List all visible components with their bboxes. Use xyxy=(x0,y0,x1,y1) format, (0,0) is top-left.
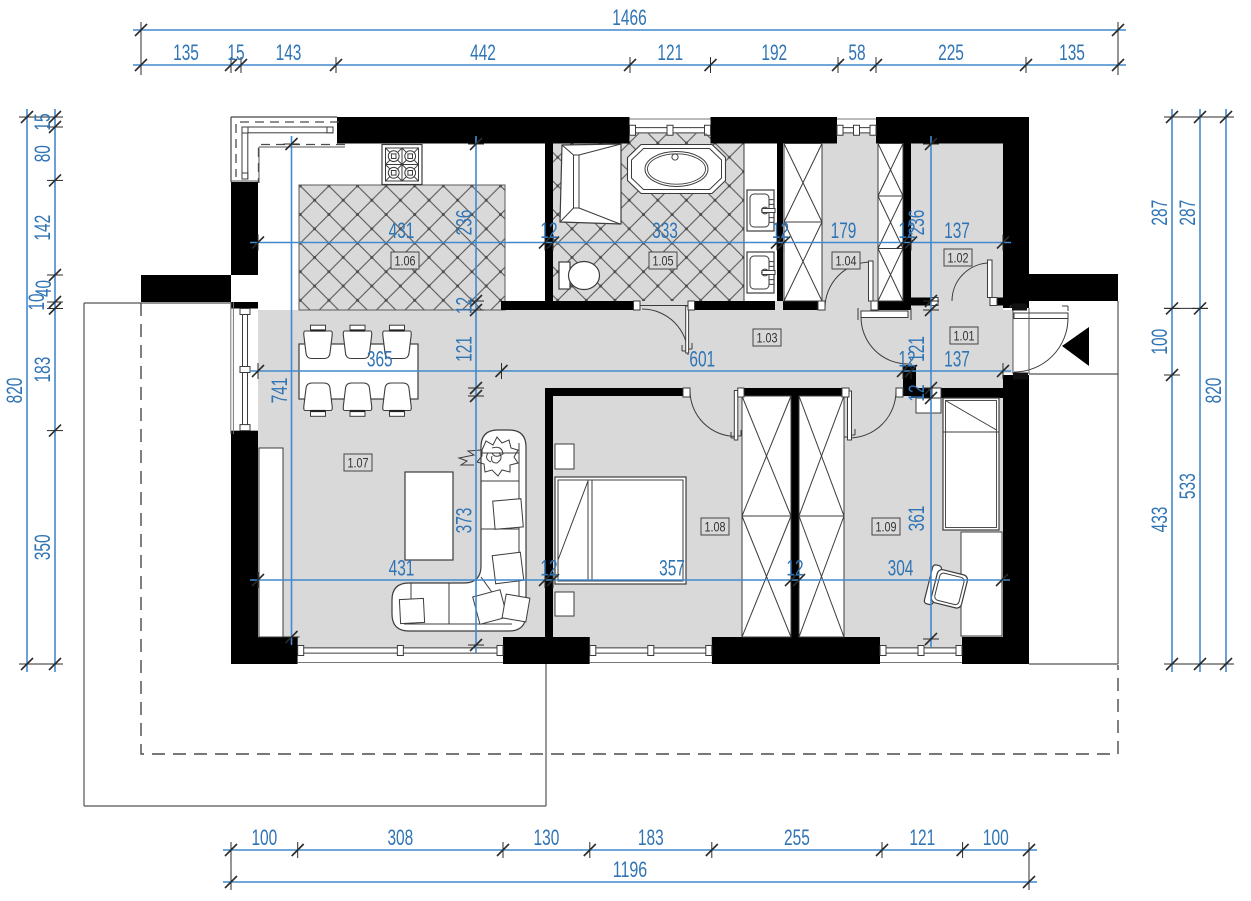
svg-text:1.07: 1.07 xyxy=(348,456,369,471)
svg-text:100: 100 xyxy=(983,825,1009,850)
svg-text:135: 135 xyxy=(1059,40,1085,65)
svg-text:433: 433 xyxy=(1147,507,1172,533)
svg-text:236: 236 xyxy=(452,210,477,236)
svg-text:1.06: 1.06 xyxy=(395,254,416,269)
svg-text:137: 137 xyxy=(944,218,970,243)
svg-text:1.02: 1.02 xyxy=(948,251,969,266)
svg-text:1.03: 1.03 xyxy=(757,331,778,346)
svg-text:183: 183 xyxy=(30,357,55,383)
svg-text:1.09: 1.09 xyxy=(876,520,897,535)
svg-text:431: 431 xyxy=(389,218,415,243)
svg-text:121: 121 xyxy=(657,40,683,65)
svg-text:12: 12 xyxy=(540,556,557,581)
svg-text:1.01: 1.01 xyxy=(954,329,975,344)
svg-text:308: 308 xyxy=(387,825,413,850)
svg-text:1.08: 1.08 xyxy=(705,520,726,535)
svg-text:121: 121 xyxy=(909,825,935,850)
svg-text:80: 80 xyxy=(30,145,55,162)
svg-text:820: 820 xyxy=(1201,378,1226,404)
svg-text:373: 373 xyxy=(452,508,477,534)
svg-text:287: 287 xyxy=(1147,200,1172,226)
svg-text:183: 183 xyxy=(638,825,664,850)
svg-text:365: 365 xyxy=(367,347,393,372)
svg-text:143: 143 xyxy=(276,40,302,65)
svg-text:121: 121 xyxy=(452,336,477,362)
svg-text:12: 12 xyxy=(452,297,477,314)
svg-text:100: 100 xyxy=(1147,329,1172,355)
svg-text:333: 333 xyxy=(652,218,678,243)
svg-text:142: 142 xyxy=(30,215,55,241)
svg-text:601: 601 xyxy=(689,347,715,372)
svg-text:15: 15 xyxy=(30,113,55,130)
svg-text:1.05: 1.05 xyxy=(653,254,674,269)
svg-text:58: 58 xyxy=(848,40,865,65)
svg-text:533: 533 xyxy=(1175,473,1200,499)
svg-text:179: 179 xyxy=(831,218,857,243)
svg-text:225: 225 xyxy=(938,40,964,65)
svg-text:255: 255 xyxy=(784,825,810,850)
svg-text:121: 121 xyxy=(904,336,929,362)
svg-text:12: 12 xyxy=(904,384,929,401)
svg-text:12: 12 xyxy=(772,218,789,243)
svg-text:361: 361 xyxy=(904,506,929,532)
svg-text:1196: 1196 xyxy=(613,857,647,882)
svg-text:1.04: 1.04 xyxy=(836,254,857,269)
svg-text:100: 100 xyxy=(251,825,277,850)
svg-text:10: 10 xyxy=(24,294,49,311)
svg-text:431: 431 xyxy=(389,556,415,581)
svg-text:12: 12 xyxy=(786,556,803,581)
svg-text:820: 820 xyxy=(2,378,27,404)
svg-text:236: 236 xyxy=(904,210,929,236)
svg-text:741: 741 xyxy=(267,378,292,404)
svg-text:12: 12 xyxy=(540,218,557,243)
svg-text:304: 304 xyxy=(888,556,914,581)
svg-text:15: 15 xyxy=(227,40,244,65)
svg-text:442: 442 xyxy=(470,40,496,65)
svg-text:287: 287 xyxy=(1175,200,1200,226)
svg-text:1466: 1466 xyxy=(612,5,646,30)
svg-text:350: 350 xyxy=(30,534,55,560)
svg-text:130: 130 xyxy=(534,825,560,850)
svg-text:192: 192 xyxy=(761,40,787,65)
svg-text:137: 137 xyxy=(944,347,970,372)
svg-text:135: 135 xyxy=(173,40,199,65)
svg-text:357: 357 xyxy=(659,556,685,581)
